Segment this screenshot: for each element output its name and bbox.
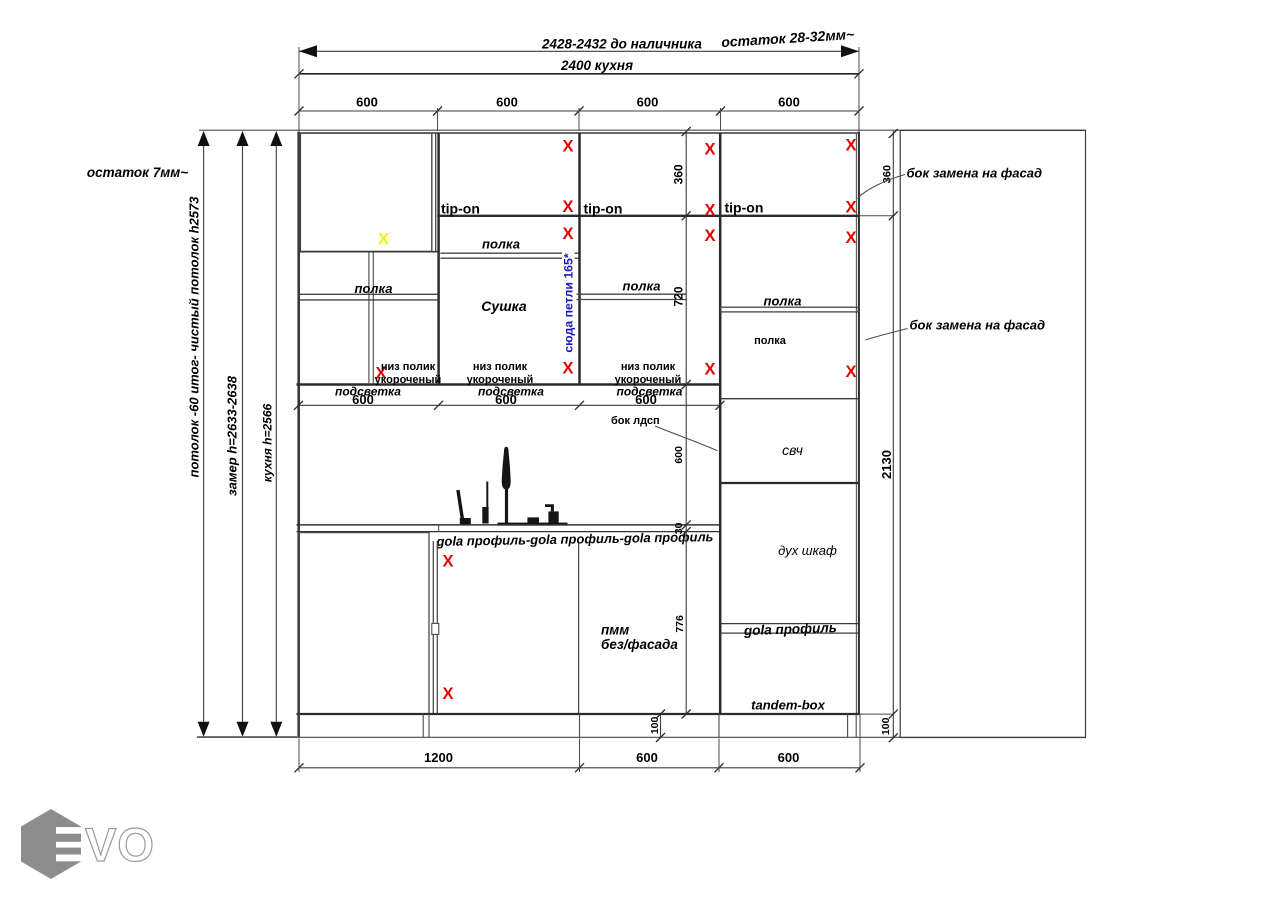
svg-text:замер h=2633-2638: замер h=2633-2638 <box>225 375 240 496</box>
svg-text:пмм: пмм <box>601 623 629 638</box>
svg-text:бок замена на фасад: бок замена на фасад <box>910 318 1046 333</box>
svg-text:2428-2432 до наличника: 2428-2432 до наличника <box>541 37 702 52</box>
svg-text:X: X <box>378 231 389 249</box>
svg-text:дух шкаф: дух шкаф <box>778 543 837 558</box>
svg-text:VO: VO <box>85 818 155 871</box>
svg-text:600: 600 <box>673 446 685 464</box>
svg-text:2400 кухня: 2400 кухня <box>560 58 633 73</box>
svg-text:600: 600 <box>636 750 658 765</box>
svg-text:полка: полка <box>764 294 802 309</box>
svg-text:потолок -60 итог- чистый пот: потолок -60 итог- чистый потолок h2573 <box>187 196 202 478</box>
svg-text:X: X <box>845 363 856 381</box>
svg-text:X: X <box>704 141 715 159</box>
svg-text:X: X <box>562 360 573 378</box>
svg-text:720: 720 <box>672 286 686 306</box>
svg-text:600: 600 <box>778 750 800 765</box>
svg-text:бок замена на фасад: бок замена на фасад <box>907 166 1043 181</box>
svg-text:низ полик: низ полик <box>621 361 676 373</box>
svg-text:X: X <box>442 685 453 703</box>
svg-text:полка: полка <box>355 281 393 296</box>
svg-text:кухня h=2566: кухня h=2566 <box>261 403 275 482</box>
svg-text:600: 600 <box>635 392 657 407</box>
svg-text:X: X <box>704 361 715 379</box>
svg-text:tandem-box: tandem-box <box>751 698 825 713</box>
svg-text:бок лдсп: бок лдсп <box>611 415 660 427</box>
svg-text:100: 100 <box>649 716 661 734</box>
svg-text:tip-on: tip-on <box>584 200 623 216</box>
svg-text:X: X <box>845 199 856 217</box>
svg-text:600: 600 <box>496 95 518 110</box>
svg-text:100: 100 <box>880 717 892 735</box>
svg-text:X: X <box>562 198 573 216</box>
svg-text:полка: полка <box>623 279 661 294</box>
svg-text:tip-on: tip-on <box>725 200 764 216</box>
svg-text:600: 600 <box>352 392 374 407</box>
svg-text:X: X <box>704 202 715 220</box>
svg-text:остаток 7мм~: остаток 7мм~ <box>87 165 188 180</box>
svg-text:Сушка: Сушка <box>481 298 527 314</box>
svg-text:сюда петли 165*: сюда петли 165* <box>562 253 576 353</box>
svg-text:полка: полка <box>482 237 520 252</box>
svg-text:X: X <box>562 138 573 156</box>
svg-text:2130: 2130 <box>879 450 894 479</box>
svg-text:X: X <box>845 137 856 155</box>
svg-text:X: X <box>562 225 573 243</box>
svg-text:X: X <box>442 553 453 571</box>
svg-text:600: 600 <box>495 392 517 407</box>
svg-text:X: X <box>845 229 856 247</box>
svg-text:полка: полка <box>754 335 787 347</box>
svg-text:1200: 1200 <box>424 750 453 765</box>
svg-text:без/фасада: без/фасада <box>601 637 678 652</box>
svg-text:600: 600 <box>637 95 659 110</box>
svg-text:776: 776 <box>674 615 686 633</box>
svg-text:600: 600 <box>778 95 800 110</box>
svg-text:низ полик: низ полик <box>381 361 436 373</box>
svg-text:свч: свч <box>782 442 803 458</box>
svg-text:30: 30 <box>673 522 685 534</box>
svg-text:tip-on: tip-on <box>441 200 480 216</box>
svg-text:360: 360 <box>672 164 686 184</box>
svg-text:низ полик: низ полик <box>473 361 528 373</box>
svg-text:600: 600 <box>356 95 378 110</box>
svg-text:X: X <box>704 227 715 245</box>
